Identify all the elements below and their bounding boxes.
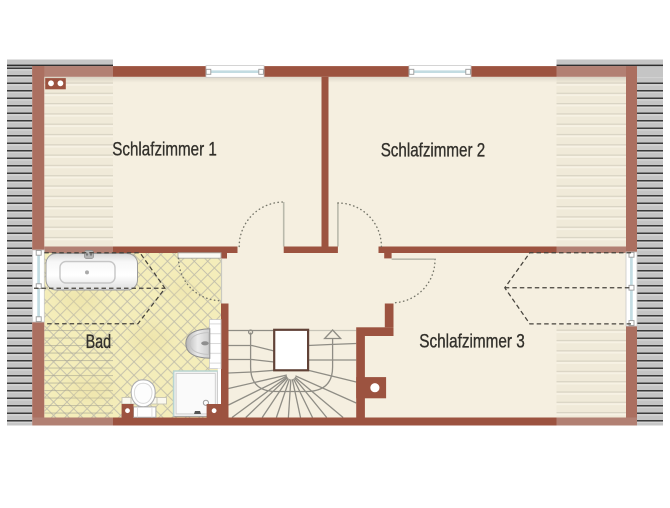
svg-text:Schlafzimmer 2: Schlafzimmer 2 <box>381 140 486 161</box>
svg-text:Schlafzimmer 1: Schlafzimmer 1 <box>112 140 217 161</box>
svg-text:Schlafzimmer 3: Schlafzimmer 3 <box>419 332 525 353</box>
svg-text:Bad: Bad <box>86 332 112 353</box>
